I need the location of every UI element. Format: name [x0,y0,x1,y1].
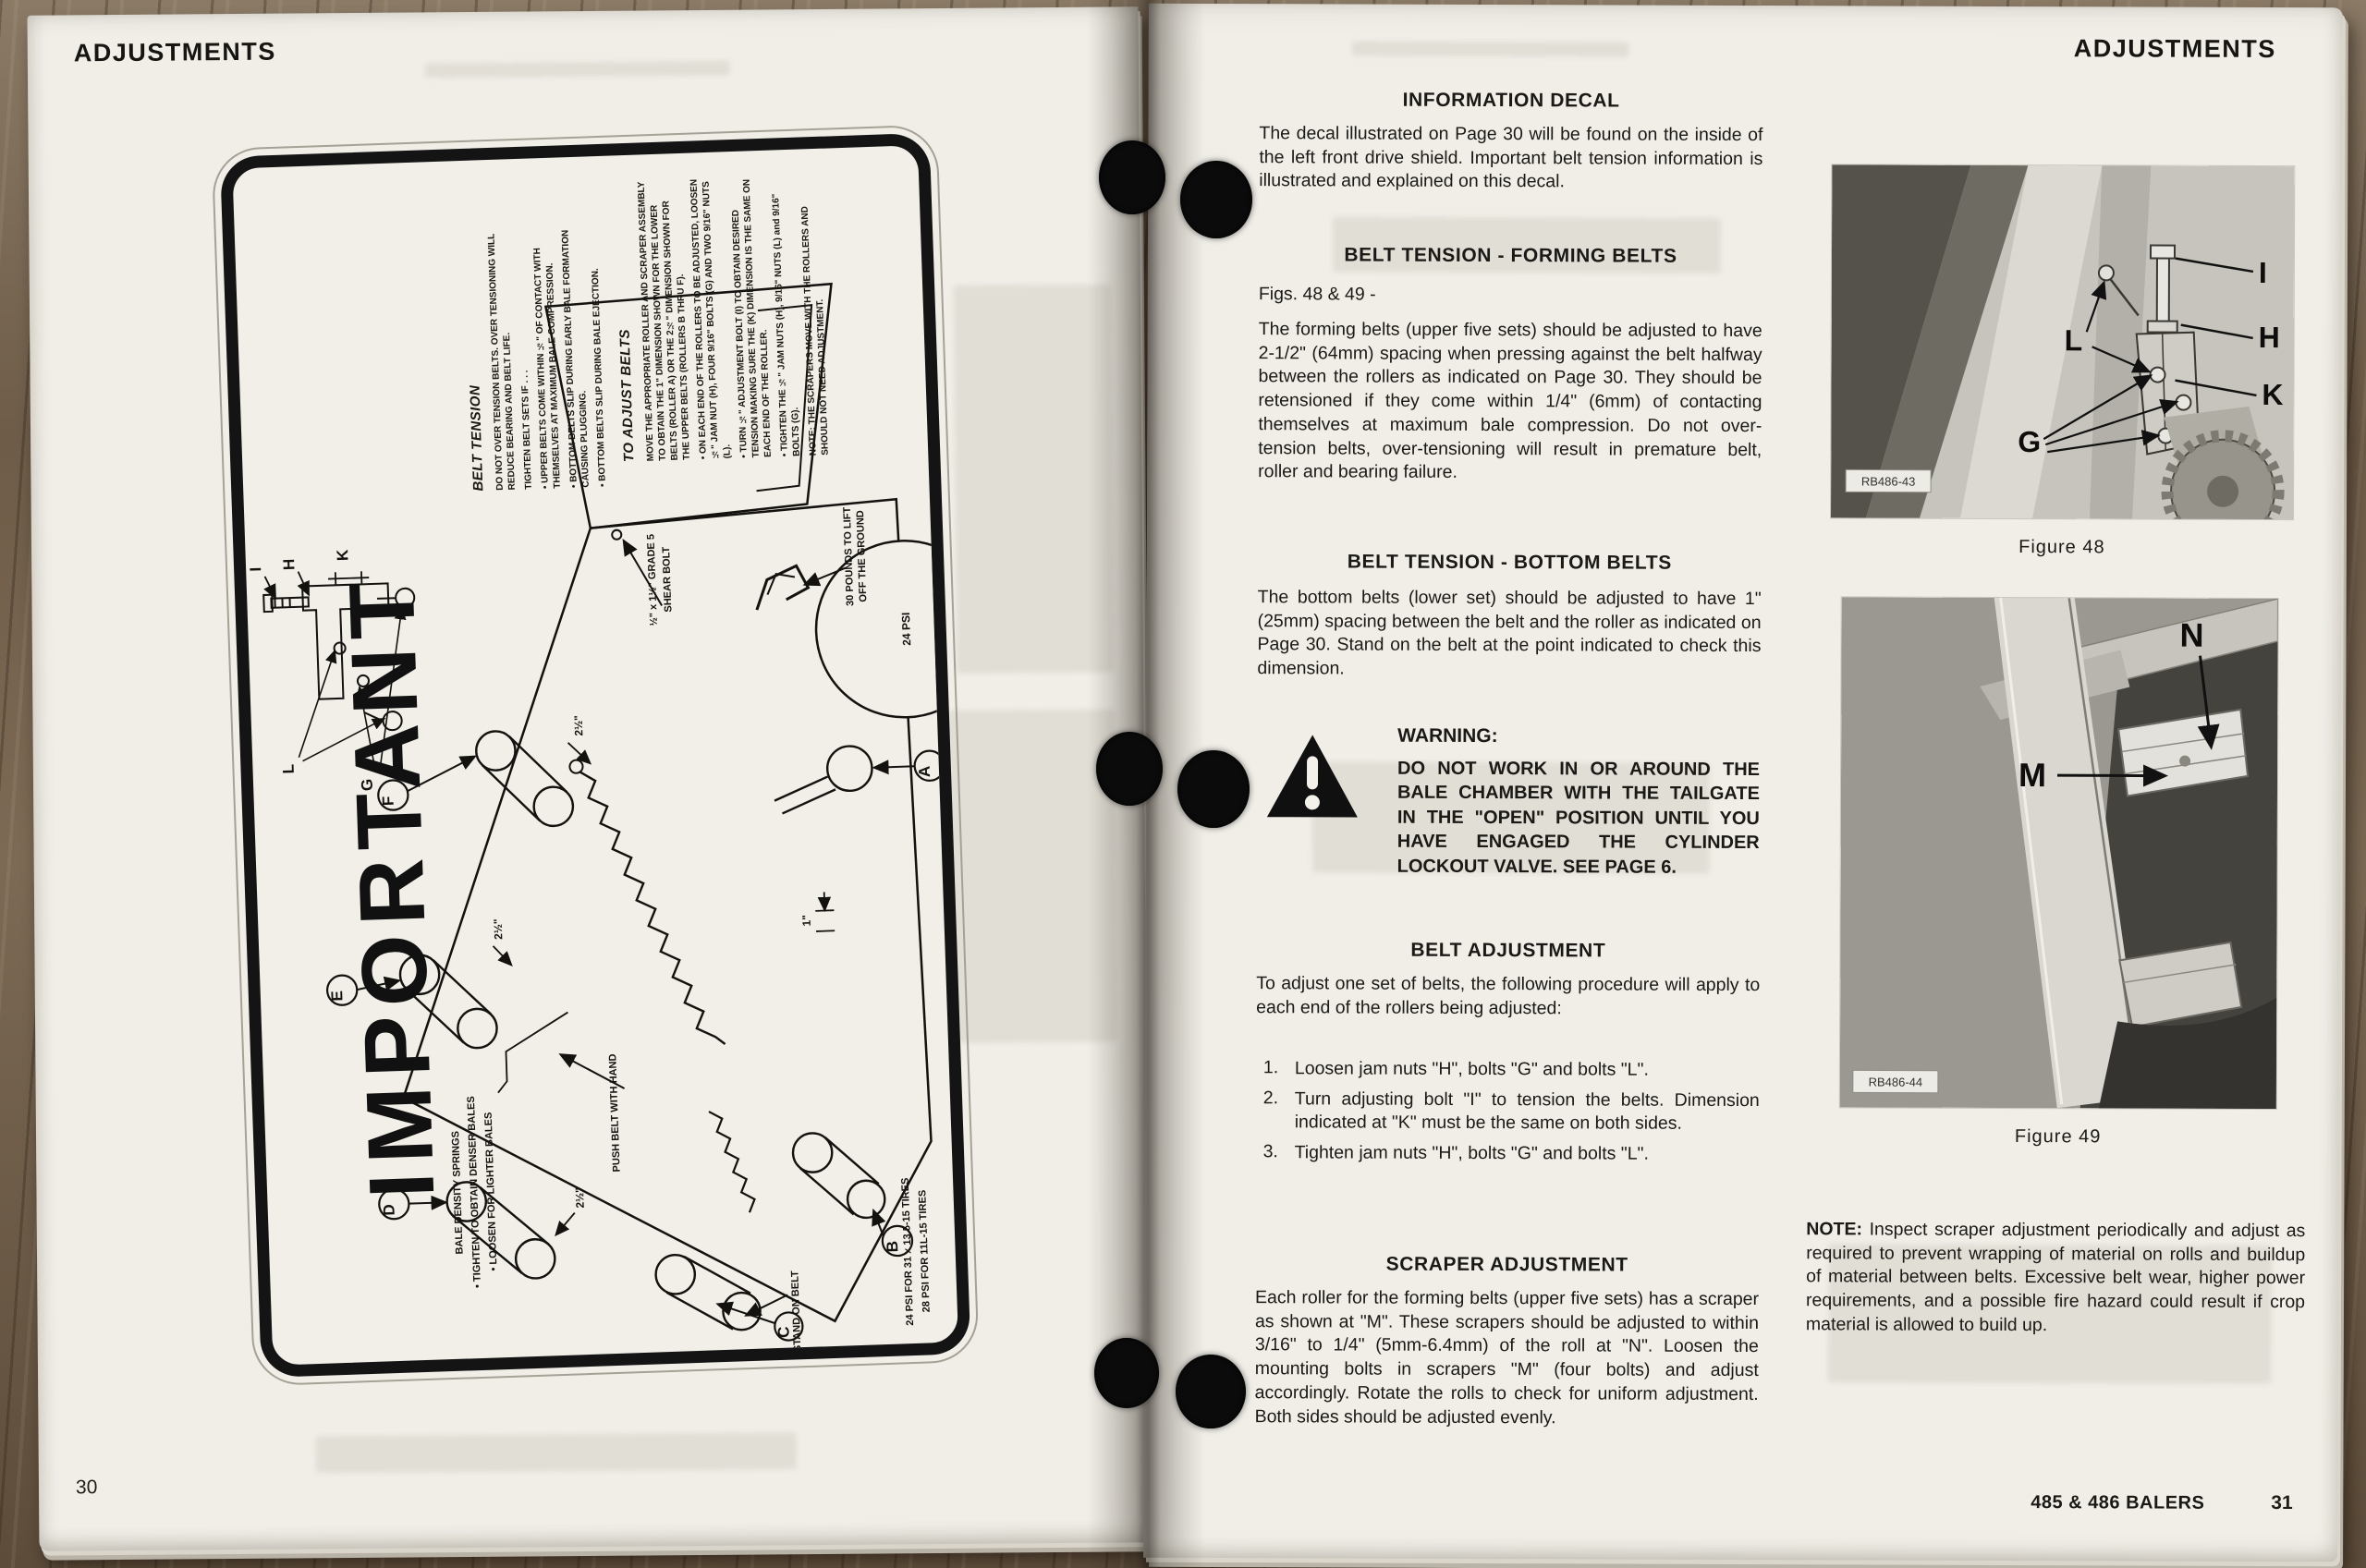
diagram-density-2: • TIGHTEN TO OBTAIN DENSER BALES [466,1096,483,1288]
forming-belts-figs: Figs. 48 & 49 - [1259,283,1762,309]
fig48-photo-id: RB486-43 [1861,474,1916,488]
right-page-header: ADJUSTMENTS [2074,34,2276,64]
decal-belt-tension-para1: DO NOT OVER TENSION BELTS. OVER TENSIONI… [484,201,518,491]
bleed-through [954,285,1114,674]
left-page-header: ADJUSTMENTS [74,38,276,68]
fig49-label-m: M [2018,756,2046,794]
belt-adjustment-intro: To adjust one set of belts, the followin… [1256,972,1760,1021]
fig48-label-g: G [2018,425,2041,458]
step-number: 3. [1263,1141,1295,1165]
scraper-adjustment-body: Each roller for the forming belts (upper… [1255,1286,1760,1430]
figure-49-art: N M RB486-44 [1840,597,2278,1109]
figure-49-caption: Figure 49 [1840,1125,2276,1149]
diagram-density-3: • LOOSEN FOR LIGHTER BALES [483,1112,500,1270]
decal-belt-tension-bullet: BOTTOM BELTS SLIP DURING EARLY BALE FORM… [558,200,592,489]
forming-belts-heading: BELT TENSION - FORMING BELTS [1259,244,1762,268]
right-page: ADJUSTMENTS INFORMATION DECAL The decal … [1143,4,2343,1562]
fig49-photo-id: RB486-44 [1869,1075,1923,1088]
bleed-through [425,61,730,79]
fig48-label-i: I [2259,256,2267,289]
left-page-number: 30 [76,1477,98,1499]
important-decal: 24 PSI 30 POUNDS TO LIFT OFF THE GROUND … [212,124,980,1386]
note-body: Inspect scraper adjustment periodically … [1806,1219,2305,1335]
decal-to-adjust-para1: MOVE THE APPROPRIATE ROLLER AND SCRAPER … [636,179,693,462]
bleed-through [1352,42,1629,57]
figure-48-art: I H K L G RB486-43 [1831,164,2294,519]
fig48-label-k: K [2262,378,2283,411]
decal-to-adjust-bullet: ON EACH END OF THE ROLLERS TO BE ADJUSTE… [689,177,734,459]
circle-label-b: B [884,1241,901,1253]
step-number: 2. [1263,1088,1295,1136]
diagram-psi-1: 24 PSI FOR 31 x 13.5-15 TIRES [900,1177,916,1326]
decal-to-adjust-bullet: TURN ½" ADJUSTMENT BOLT (I) TO OBTAIN DE… [729,176,774,458]
left-page: ADJUSTMENTS 30 24 PSI [27,6,1150,1550]
detail-label-i: I [247,566,264,571]
warning-body: DO NOT WORK IN OR AROUND THE BALE CHAMBE… [1397,757,1760,880]
diagram-lift-label-2: OFF THE GROUND [855,510,869,602]
diagram-shear-bolt-2: SHEAR BOLT [661,546,674,613]
step-number: 1. [1263,1057,1295,1081]
binder-hole [1099,140,1165,214]
binder-hole [1177,750,1250,828]
belt-adjustment-heading: BELT ADJUSTMENT [1256,939,1760,963]
decal-belt-tension-heading: BELT TENSION [460,202,488,491]
decal-border: 24 PSI 30 POUNDS TO LIFT OFF THE GROUND … [220,133,971,1378]
decal-to-adjust-heading: TO ADJUST BELTS [611,181,639,462]
diagram-lift-label-1: 30 POUNDS TO LIFT [842,506,857,606]
step-2: 2. Turn adjusting bolt "I" to tension th… [1263,1088,1760,1136]
decal-belt-tension-section: BELT TENSION DO NOT OVER TENSION BELTS. … [454,199,614,492]
step-3: 3. Tighten jam nuts "H", bolts "G" and b… [1263,1141,1760,1167]
bottom-belts-body: The bottom belts (lower set) should be a… [1257,586,1761,683]
fig48-label-h: H [2259,321,2280,354]
decal-to-adjust-section: TO ADJUST BELTS MOVE THE APPROPRIATE ROL… [604,175,836,463]
decal-to-adjust-bullet: TIGHTEN THE ½" JAM NUTS (H), 9/16" NUTS … [769,176,802,457]
diagram-tire-psi: 24 PSI [899,612,913,646]
right-footer-title: 485 & 486 BALERS [2031,1492,2204,1514]
dim-upper-3: 2½" [573,1187,587,1209]
dim-lower: 1" [799,915,812,927]
bleed-through [316,1432,797,1473]
figure-48-caption: Figure 48 [1831,536,2293,559]
circle-label-a: A [916,765,933,777]
fig49-label-n: N [2179,616,2203,654]
forming-belts-body: The forming belts (upper five sets) shou… [1258,318,1762,486]
step-text: Turn adjusting bolt "I" to tension the b… [1295,1088,1760,1136]
belt-adjustment-steps: 1. Loosen jam nuts "H", bolts "G" and bo… [1263,1057,1760,1173]
scraper-adjustment-heading: SCRAPER ADJUSTMENT [1255,1253,1759,1277]
scraper-note: NOTE: Inspect scraper adjustment periodi… [1806,1218,2305,1339]
binder-hole [1176,1355,1246,1428]
info-decal-body: The decal illustrated on Page 30 will be… [1259,122,1762,195]
photographed-manual: { "page30": { "header": "ADJUSTMENTS", "… [0,0,2366,1568]
figure-49-photo: N M RB486-44 [1840,597,2278,1109]
detail-label-l: L [280,764,298,774]
diagram-psi-2: 28 PSI FOR 11L-15 TIRES [917,1190,933,1313]
binder-hole [1096,732,1163,806]
diagram-stand-label: STAND ON BELT [789,1270,803,1353]
binder-hole [1180,161,1252,238]
bleed-through [947,710,1116,1043]
warning-triangle-icon [1264,732,1360,820]
note-label: NOTE: [1806,1219,1862,1239]
dim-upper-1: 2½" [572,715,586,736]
bottom-belts-heading: BELT TENSION - BOTTOM BELTS [1258,551,1762,575]
decal-belt-tension-bullet: UPPER BELTS COME WITHIN ½" OF CONTACT WI… [530,201,564,490]
decal-to-adjust-note: NOTE: THE SCRAPERS MOVE WITH THE ROLLERS… [798,175,831,456]
warning-label: WARNING: [1397,723,1760,750]
circle-label-d: D [380,1204,397,1216]
step-text: Tighten jam nuts "H", bolts "G" and bolt… [1295,1142,1649,1167]
step-text: Loosen jam nuts "H", bolts "G" and bolts… [1295,1057,1649,1082]
binder-hole [1094,1338,1159,1408]
right-page-number: 31 [2271,1492,2292,1514]
detail-label-h: H [280,558,298,570]
info-decal-heading: INFORMATION DECAL [1260,89,1763,113]
step-1: 1. Loosen jam nuts "H", bolts "G" and bo… [1263,1057,1760,1083]
dim-upper-2: 2½" [492,918,506,940]
diagram-push-label: PUSH BELT WITH HAND [607,1053,622,1172]
fig48-label-l: L [2065,323,2083,357]
figure-48-photo: I H K L G RB486-43 [1831,164,2294,519]
circle-label-c: C [774,1326,792,1338]
